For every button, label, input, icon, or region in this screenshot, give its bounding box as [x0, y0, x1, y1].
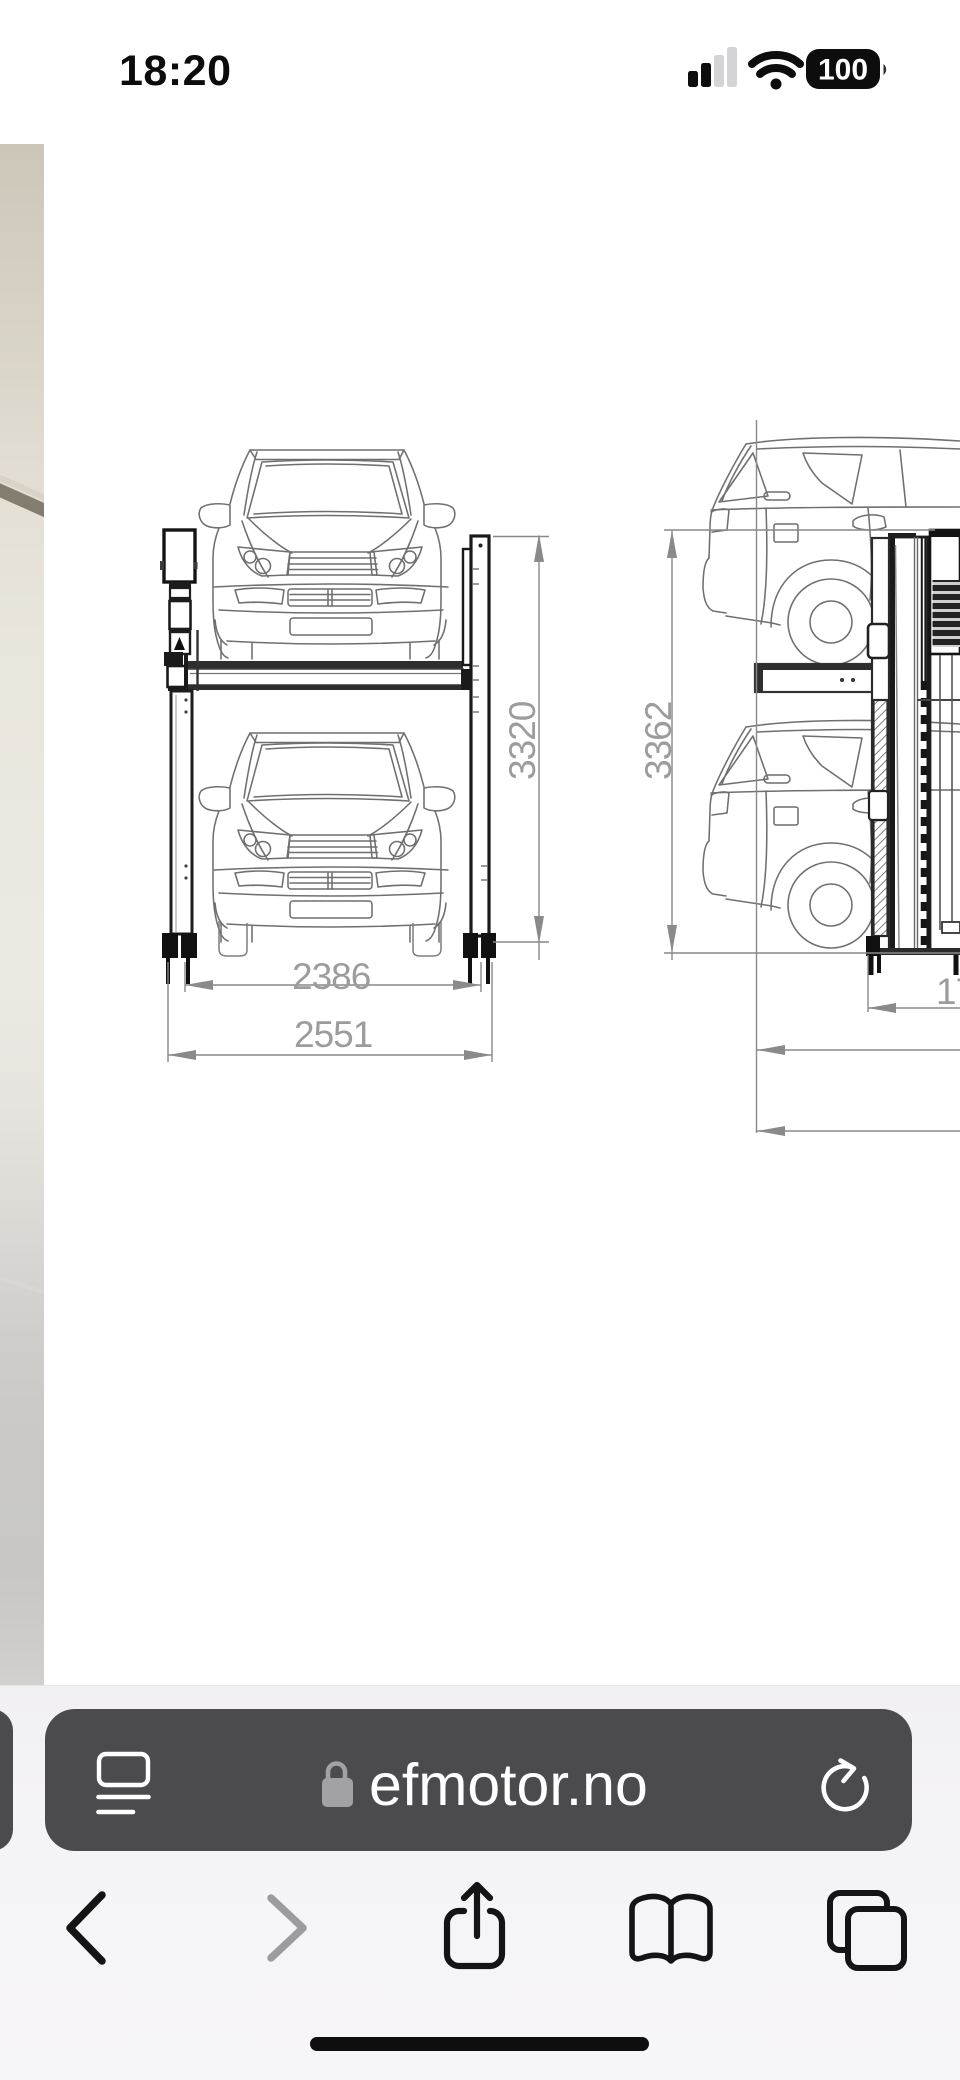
svg-text:2551: 2551 — [294, 1014, 372, 1055]
svg-text:3362: 3362 — [638, 702, 679, 780]
svg-text:2386: 2386 — [292, 956, 370, 997]
svg-text:17: 17 — [936, 971, 960, 1012]
svg-text:3320: 3320 — [502, 701, 543, 780]
